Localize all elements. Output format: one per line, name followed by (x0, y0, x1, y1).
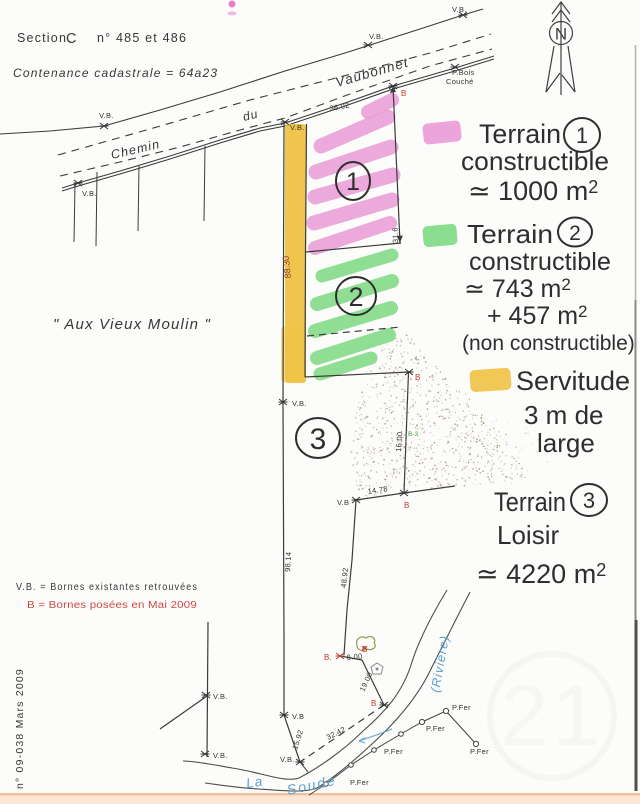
svg-text:large: large (537, 428, 595, 458)
svg-text:V.B.: V.B. (82, 189, 97, 198)
svg-text:B: B (415, 373, 420, 382)
svg-text:98.14: 98.14 (283, 551, 293, 572)
svg-text:V.B.: V.B. (213, 751, 228, 760)
svg-text:V.B.: V.B. (99, 111, 114, 120)
svg-text:Couché: Couché (446, 77, 474, 86)
svg-text:V.B: V.B (337, 498, 349, 507)
svg-text:P.Fer: P.Fer (384, 747, 403, 756)
svg-text:B = Bornes posées en Mai 20: B = Bornes posées en Mai 2009 (27, 600, 197, 611)
svg-text:V.B.: V.B. (369, 32, 384, 41)
svg-text:Contenance cadastrale = 64a2: Contenance cadastrale = 64a23 (13, 66, 218, 80)
svg-text:C: C (66, 31, 78, 47)
svg-text:V.B.: V.B. (290, 123, 305, 132)
svg-text:P.Fer: P.Fer (426, 724, 445, 733)
svg-text:V.B.: V.B. (292, 399, 307, 408)
svg-text:21: 21 (500, 668, 604, 764)
svg-text:Terrain: Terrain (494, 487, 566, 517)
svg-text:Section: Section (17, 31, 67, 45)
svg-text:3 m de: 3 m de (524, 400, 604, 430)
svg-text:+ 457 m2: + 457 m2 (487, 302, 588, 330)
svg-text:P.Fer: P.Fer (470, 747, 489, 756)
svg-text:2: 2 (569, 222, 581, 245)
svg-text:B: B (401, 89, 406, 98)
svg-text:" Aux Vieux Moulin ": " Aux Vieux Moulin " (53, 316, 211, 333)
svg-text:La: La (245, 773, 264, 790)
svg-text:B: B (371, 699, 376, 708)
svg-text:constructible: constructible (469, 248, 611, 276)
svg-text:V.B: V.B (292, 712, 304, 721)
svg-text:≃ 743 m2: ≃ 743 m2 (464, 275, 571, 303)
svg-text:n° 485 et 486: n° 485 et 486 (97, 31, 187, 45)
svg-text:1: 1 (346, 168, 360, 196)
svg-text:≃ 1000 m2: ≃ 1000 m2 (468, 176, 598, 206)
svg-text:3: 3 (310, 423, 327, 456)
svg-text:B-3: B-3 (408, 431, 419, 438)
svg-text:P.Fer: P.Fer (350, 778, 369, 787)
svg-text:Terrain: Terrain (467, 219, 553, 249)
svg-text:Servitude: Servitude (516, 366, 630, 396)
svg-text:2: 2 (348, 282, 363, 312)
svg-text:B.: B. (324, 653, 332, 662)
svg-text:P.Bois: P.Bois (452, 68, 475, 77)
svg-text:16.00: 16.00 (394, 431, 404, 452)
svg-text:N: N (555, 25, 567, 44)
svg-text:V.B.: V.B. (452, 5, 467, 14)
svg-text:n° 09-038 Mars 2009: n° 09-038 Mars 2009 (14, 668, 26, 789)
svg-text:≃ 4220 m2: ≃ 4220 m2 (476, 559, 606, 589)
svg-text:Terrain: Terrain (479, 119, 561, 149)
svg-text:(non constructible): (non constructible) (462, 332, 635, 355)
svg-text:31.6: 31.6 (390, 227, 400, 243)
svg-text:V.B.: V.B. (280, 755, 295, 764)
svg-text:Loisir: Loisir (497, 520, 559, 550)
svg-text:B: B (362, 645, 367, 654)
svg-text:V.B.: V.B. (213, 692, 228, 701)
svg-text:P.Fer: P.Fer (452, 703, 471, 712)
svg-text:V.B. = Bornes existantes ret: V.B. = Bornes existantes retrouvées (16, 582, 198, 593)
svg-text:3: 3 (583, 488, 595, 513)
svg-text:B: B (404, 501, 409, 510)
svg-text:6.00: 6.00 (346, 651, 363, 662)
svg-text:1: 1 (576, 123, 588, 148)
